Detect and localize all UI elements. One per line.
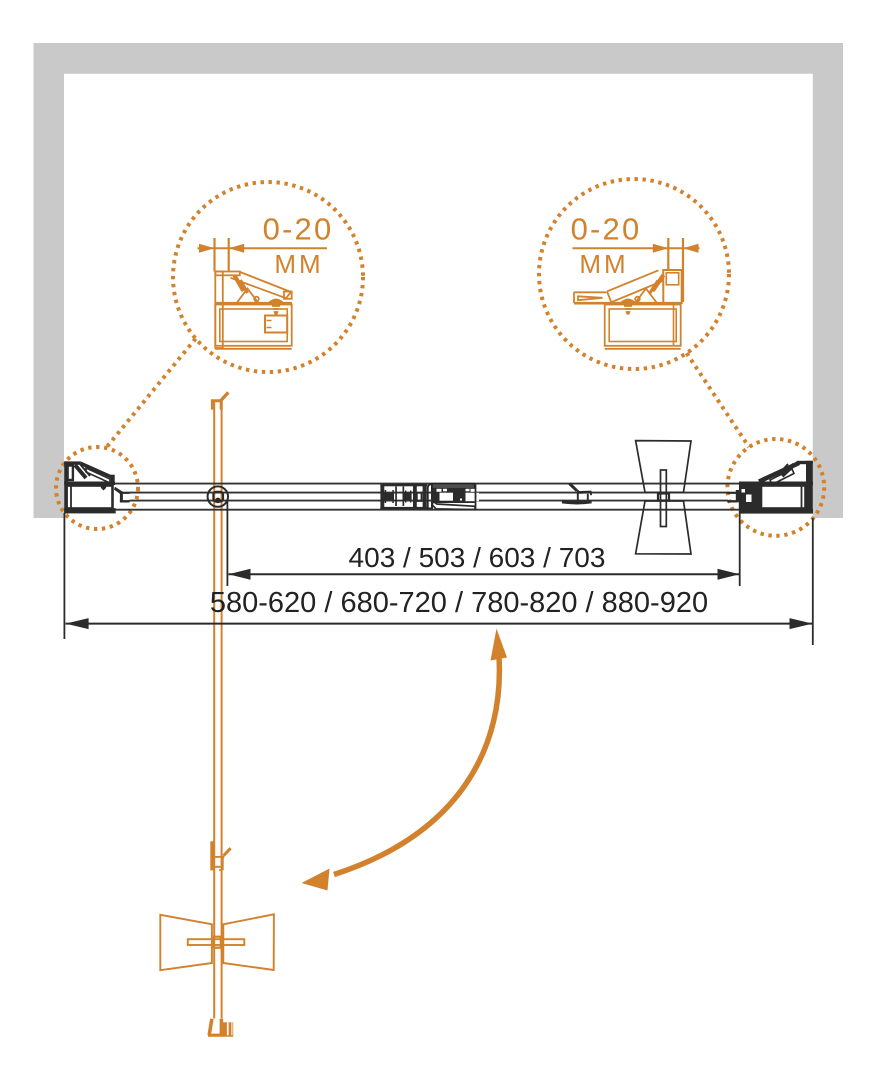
svg-text:580-620 / 680-720 / 780-820 /: 580-620 / 680-720 / 780-820 / 880-920 [210,587,708,619]
svg-text:ММ: ММ [579,249,628,279]
svg-text:0-20: 0-20 [571,212,642,247]
svg-text:403 / 503 / 603 / 703: 403 / 503 / 603 / 703 [349,542,606,573]
svg-text:ММ: ММ [274,249,323,279]
svg-text:0-20: 0-20 [263,212,334,247]
